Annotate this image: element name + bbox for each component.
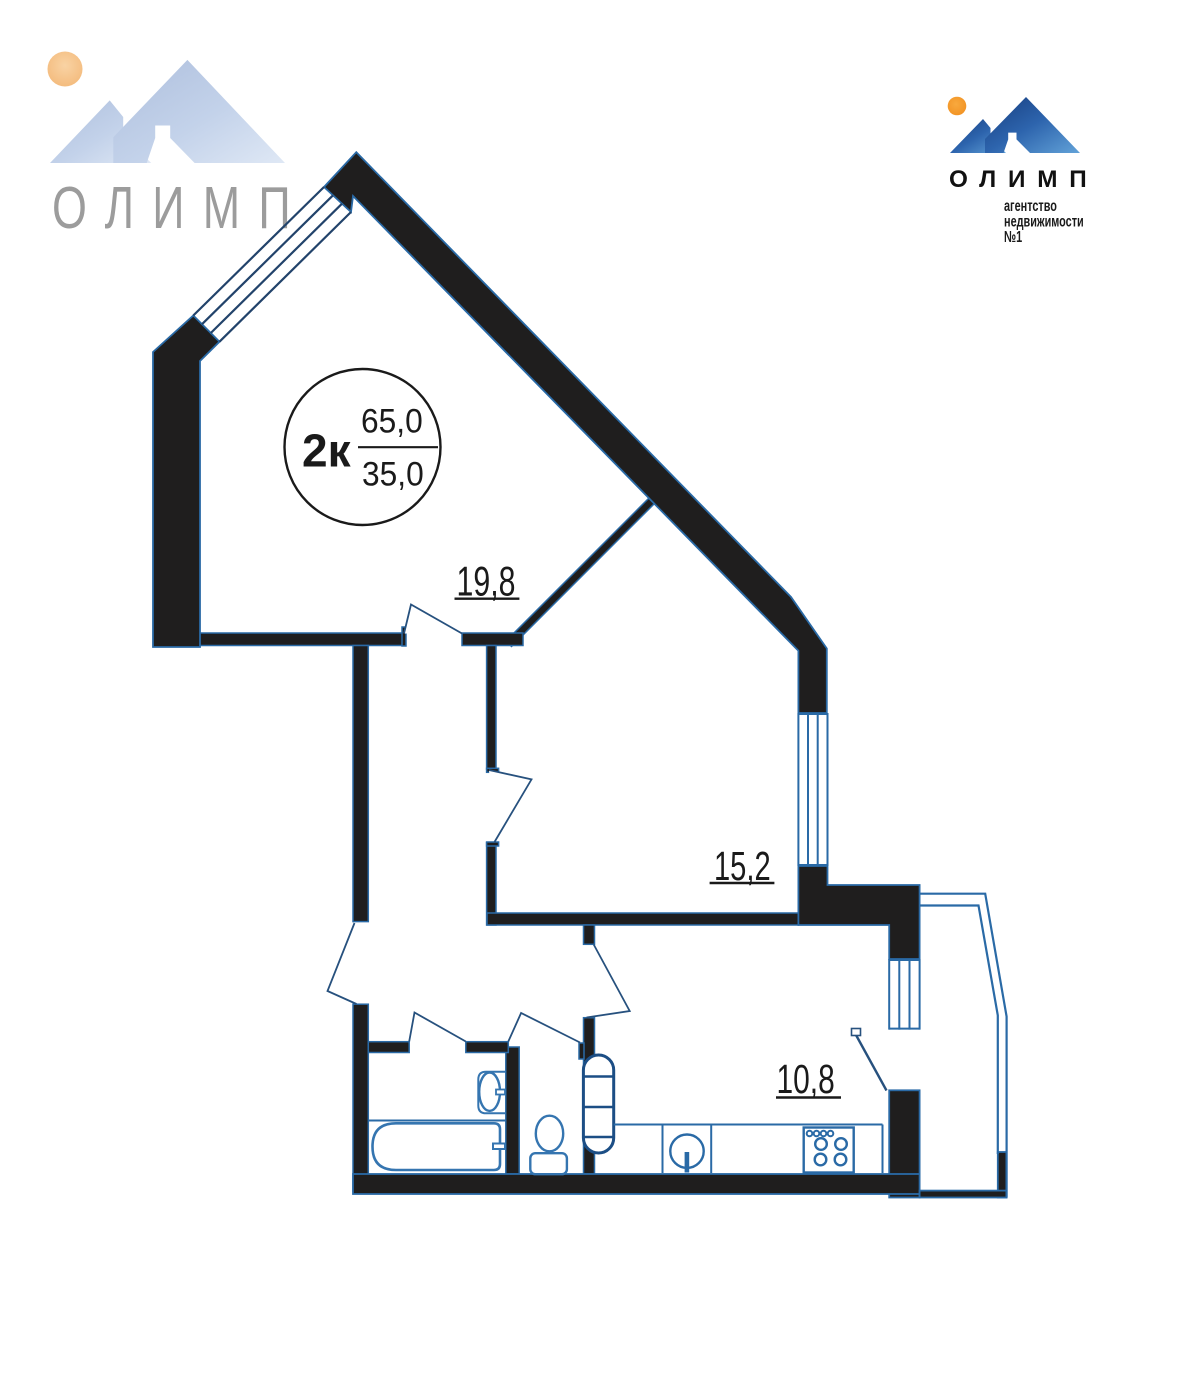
svg-text:№1: №1 bbox=[1004, 228, 1022, 246]
svg-text:35,0: 35,0 bbox=[362, 455, 424, 494]
svg-text:ОЛИМП: ОЛИМП bbox=[52, 176, 309, 241]
svg-text:ОЛИМП: ОЛИМП bbox=[949, 166, 1099, 193]
svg-text:10,8: 10,8 bbox=[777, 1056, 835, 1102]
svg-text:2к: 2к bbox=[302, 425, 352, 477]
svg-text:65,0: 65,0 bbox=[361, 402, 423, 441]
